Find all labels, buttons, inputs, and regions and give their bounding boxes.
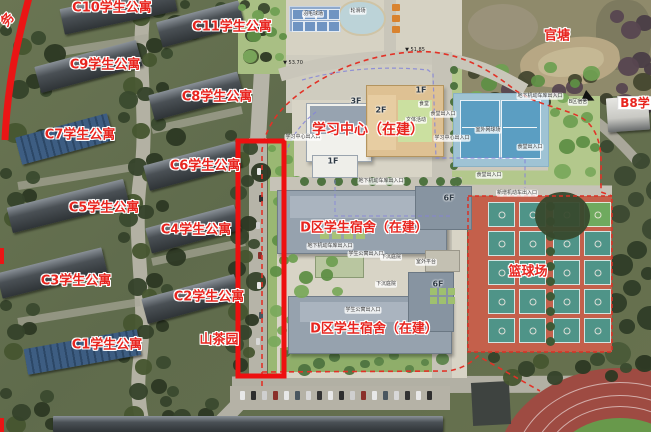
tree	[7, 324, 25, 340]
parked-car	[427, 391, 432, 400]
tree	[332, 287, 343, 297]
tree	[298, 364, 311, 376]
floor-label: 3F	[350, 97, 361, 106]
plan-label: 新增机动车出入口	[496, 190, 538, 197]
parked-car	[284, 391, 289, 400]
tree	[129, 383, 148, 400]
street-tree	[317, 177, 326, 186]
sunken-garden-cell	[448, 297, 455, 304]
center-circle	[563, 298, 570, 305]
sunken-garden-cell	[430, 297, 437, 304]
region-label: 学习中心（在建）	[312, 123, 424, 137]
tree	[13, 38, 32, 55]
tree	[9, 80, 30, 99]
tree	[132, 243, 150, 259]
tree	[575, 360, 590, 374]
tree	[436, 353, 449, 365]
tree	[142, 53, 157, 66]
plan-label: 羽毛球场	[302, 11, 324, 18]
basketball-court	[488, 289, 515, 314]
plan-label: 学生公寓出入口	[347, 251, 384, 258]
basketball-court	[519, 289, 546, 314]
parked-car	[350, 391, 355, 400]
tree	[26, 303, 40, 316]
sunken-garden-cell	[439, 297, 446, 304]
street-tree	[419, 177, 428, 186]
parked-car	[328, 391, 333, 400]
tree	[405, 365, 414, 373]
parked-car	[416, 391, 421, 400]
parked-car	[240, 391, 245, 400]
tree	[160, 396, 172, 407]
region-label: C3学生公寓	[41, 275, 112, 288]
tree	[632, 153, 650, 169]
tree	[628, 192, 644, 206]
tree	[166, 248, 187, 267]
plan-label: 下沉庭院	[375, 281, 397, 288]
tree	[0, 388, 12, 399]
car-on-road	[258, 252, 262, 259]
plan-label: B区宿舍	[568, 99, 588, 106]
tree	[4, 343, 23, 360]
badminton-court	[316, 21, 328, 32]
tree	[119, 91, 138, 108]
tree	[559, 139, 575, 153]
floor-label: 6F	[443, 194, 454, 203]
center-circle	[563, 327, 570, 334]
tree	[627, 241, 647, 259]
center-circle	[594, 240, 601, 247]
tree	[635, 355, 651, 372]
tree	[161, 48, 173, 59]
tree	[546, 292, 555, 301]
center-circle	[563, 240, 570, 247]
region-label: C5学生公寓	[69, 202, 140, 215]
elevation-marker: ▼ 53.70	[283, 60, 303, 66]
region-label: 山茶园	[199, 334, 238, 347]
parked-car	[405, 391, 410, 400]
soccer-field	[550, 418, 651, 432]
tree	[494, 64, 509, 77]
basketball-court	[488, 202, 515, 227]
plan-label: 食堂出入口	[429, 111, 456, 118]
street-tree	[450, 82, 458, 90]
center-circle	[594, 298, 601, 305]
tree	[546, 247, 555, 256]
tree	[633, 73, 651, 92]
tree	[225, 130, 237, 141]
tree	[621, 21, 641, 39]
plan-label: 轮滑场	[349, 8, 366, 15]
tree	[275, 166, 286, 176]
tree	[610, 10, 624, 23]
tree	[360, 360, 370, 369]
tree	[321, 269, 334, 280]
tree	[137, 205, 153, 220]
tree	[40, 390, 55, 403]
basketball-court	[519, 318, 546, 343]
sunken-garden-cell	[430, 288, 437, 295]
tree	[546, 337, 555, 346]
tree	[614, 407, 632, 423]
center-circle	[529, 298, 536, 305]
floor-label: 1F	[327, 157, 338, 166]
parked-car	[372, 391, 377, 400]
tree	[146, 273, 162, 288]
basketball-court	[553, 289, 580, 314]
region-label: 官塘	[544, 30, 570, 43]
plan-label: 学习中心出入口	[433, 135, 470, 142]
tree	[554, 164, 571, 179]
elevation-marker: ▼ 51.85	[405, 47, 425, 53]
tree	[233, 358, 248, 371]
tree	[230, 186, 246, 201]
floor-label: 6F	[432, 280, 443, 289]
badminton-court	[292, 21, 304, 32]
street-tree	[450, 66, 458, 74]
tree	[245, 314, 258, 326]
tree	[488, 352, 500, 363]
tree	[610, 205, 630, 223]
car-on-road	[259, 312, 263, 319]
parked-car	[361, 391, 366, 400]
tree	[601, 381, 625, 403]
tree	[544, 62, 556, 73]
parked-car	[295, 391, 300, 400]
center-circle	[594, 211, 601, 218]
tree	[632, 394, 646, 407]
basketball-court	[488, 318, 515, 343]
street-tree	[450, 178, 458, 186]
region-label: C1学生公寓	[72, 339, 143, 352]
plan-label: 地下机动车库出入口	[357, 178, 404, 185]
plan-label: 下沉庭院	[380, 254, 402, 261]
region-label: C4学生公寓	[161, 224, 232, 237]
parked-car	[306, 391, 311, 400]
track-lane-line	[512, 382, 651, 432]
tree	[646, 179, 651, 202]
tree	[288, 254, 298, 263]
plan-label: 食堂出入口	[475, 172, 502, 179]
basketball-court	[584, 260, 611, 285]
tree	[268, 336, 280, 347]
badminton-court	[328, 21, 340, 32]
tree	[135, 359, 153, 375]
canopy-seat	[392, 4, 400, 11]
tree	[241, 175, 254, 187]
roller-rink	[338, 0, 386, 36]
tree	[0, 168, 12, 179]
tree	[180, 0, 190, 9]
badminton-court	[304, 21, 316, 32]
basketball-court	[584, 231, 611, 256]
tree	[546, 307, 555, 316]
tree	[156, 200, 169, 212]
d-dorm-north-roof	[290, 196, 432, 218]
tree	[118, 232, 130, 243]
tree	[581, 112, 593, 123]
tree	[12, 404, 31, 421]
center-circle	[498, 298, 505, 305]
car-on-road	[257, 168, 261, 175]
parked-car	[262, 391, 267, 400]
terrain-patch	[468, 4, 538, 50]
parked-car	[273, 391, 278, 400]
tree	[468, 68, 480, 79]
tree	[260, 52, 271, 62]
center-circle	[529, 240, 536, 247]
parked-car	[317, 391, 322, 400]
track-lane-line	[540, 406, 651, 432]
tree	[344, 366, 355, 376]
region-label: C2学生公寓	[174, 291, 245, 304]
parked-car	[339, 391, 344, 400]
tree	[620, 363, 632, 374]
tree	[31, 31, 46, 45]
sunken-garden-cell	[448, 288, 455, 295]
basketball-court	[584, 318, 611, 343]
tree	[0, 300, 12, 311]
tree	[576, 136, 589, 148]
tree	[26, 171, 40, 184]
parked-car	[251, 391, 256, 400]
badminton-court	[328, 9, 340, 20]
tennis-net-line	[503, 127, 537, 128]
tree	[151, 379, 167, 394]
region-label: D区学生宿舍（在建）	[300, 222, 428, 235]
basketball-court	[553, 260, 580, 285]
tree	[623, 280, 641, 296]
tree	[132, 123, 150, 139]
tree	[619, 319, 635, 333]
tree	[618, 57, 639, 76]
tree	[166, 128, 187, 147]
street-tree	[300, 177, 309, 186]
center-circle	[594, 269, 601, 276]
region-label: C6学生公寓	[170, 160, 241, 173]
tree	[642, 218, 651, 240]
small-building	[471, 381, 511, 426]
tree	[156, 356, 171, 369]
basketball-court	[584, 289, 611, 314]
region-label: C8学生公寓	[182, 91, 253, 104]
tree-cluster	[535, 192, 590, 240]
tree	[533, 354, 550, 369]
region-label: C9学生公寓	[70, 59, 141, 72]
region-label: B8学	[618, 97, 651, 109]
tree	[546, 322, 555, 331]
plan-label: 室外网球场	[474, 127, 501, 134]
basketball-court	[488, 231, 515, 256]
tree	[600, 140, 614, 153]
center-circle	[498, 211, 505, 218]
center-circle	[498, 240, 505, 247]
floor-label: 2F	[375, 106, 386, 115]
plan-label: 地下机动车库出入口	[306, 243, 353, 250]
region-label: C11学生公寓	[192, 21, 272, 34]
tree	[294, 285, 309, 299]
tree	[326, 256, 338, 267]
car-on-road	[257, 282, 261, 289]
tree	[637, 306, 651, 329]
basketball-court	[519, 231, 546, 256]
car-on-road	[256, 222, 260, 229]
tree	[590, 353, 604, 366]
center-circle	[563, 269, 570, 276]
plan-label: 室外平台	[415, 259, 437, 266]
sunken-garden-cell	[439, 288, 446, 295]
campus-aerial-map: C10学生公寓C11学生公寓C9学生公寓C8学生公寓C7学生公寓C6学生公寓C5…	[0, 0, 651, 432]
plan-label: 食堂	[418, 101, 430, 108]
car-on-road	[259, 195, 263, 202]
region-label: D区学生宿舍（在建）	[310, 323, 438, 336]
basketball-court	[553, 318, 580, 343]
center-circle	[529, 327, 536, 334]
tree	[34, 402, 50, 417]
canopy-seat	[392, 15, 400, 22]
plan-label: 食堂出入口	[516, 144, 543, 151]
canopy-seat	[392, 26, 400, 33]
region-label: C10学生公寓	[72, 2, 152, 15]
tree	[590, 143, 600, 152]
tree	[550, 108, 560, 117]
tree	[547, 371, 562, 385]
center-circle	[594, 327, 601, 334]
tree	[248, 239, 260, 250]
tree	[118, 112, 130, 123]
tree	[614, 166, 636, 186]
tree	[605, 370, 618, 382]
center-circle	[498, 269, 505, 276]
tree	[609, 254, 633, 276]
region-label: C7学生公寓	[45, 129, 116, 142]
tree	[421, 359, 429, 366]
floor-label: 1F	[415, 86, 426, 95]
region-label: 篮球场	[508, 266, 547, 279]
parked-car	[394, 391, 399, 400]
center-circle	[498, 327, 505, 334]
parked-car	[383, 391, 388, 400]
tree	[243, 347, 255, 358]
tree	[641, 267, 651, 280]
plan-label: 地下机动车库出入口	[516, 93, 563, 100]
tree	[270, 266, 281, 276]
street-tree	[436, 177, 445, 186]
plan-label: 学生公寓出入口	[344, 307, 381, 314]
street-tree	[334, 177, 343, 186]
tree	[167, 386, 179, 397]
apartment-building	[53, 416, 443, 432]
tree	[156, 320, 169, 332]
car-on-road	[256, 338, 260, 345]
tree	[205, 398, 219, 411]
